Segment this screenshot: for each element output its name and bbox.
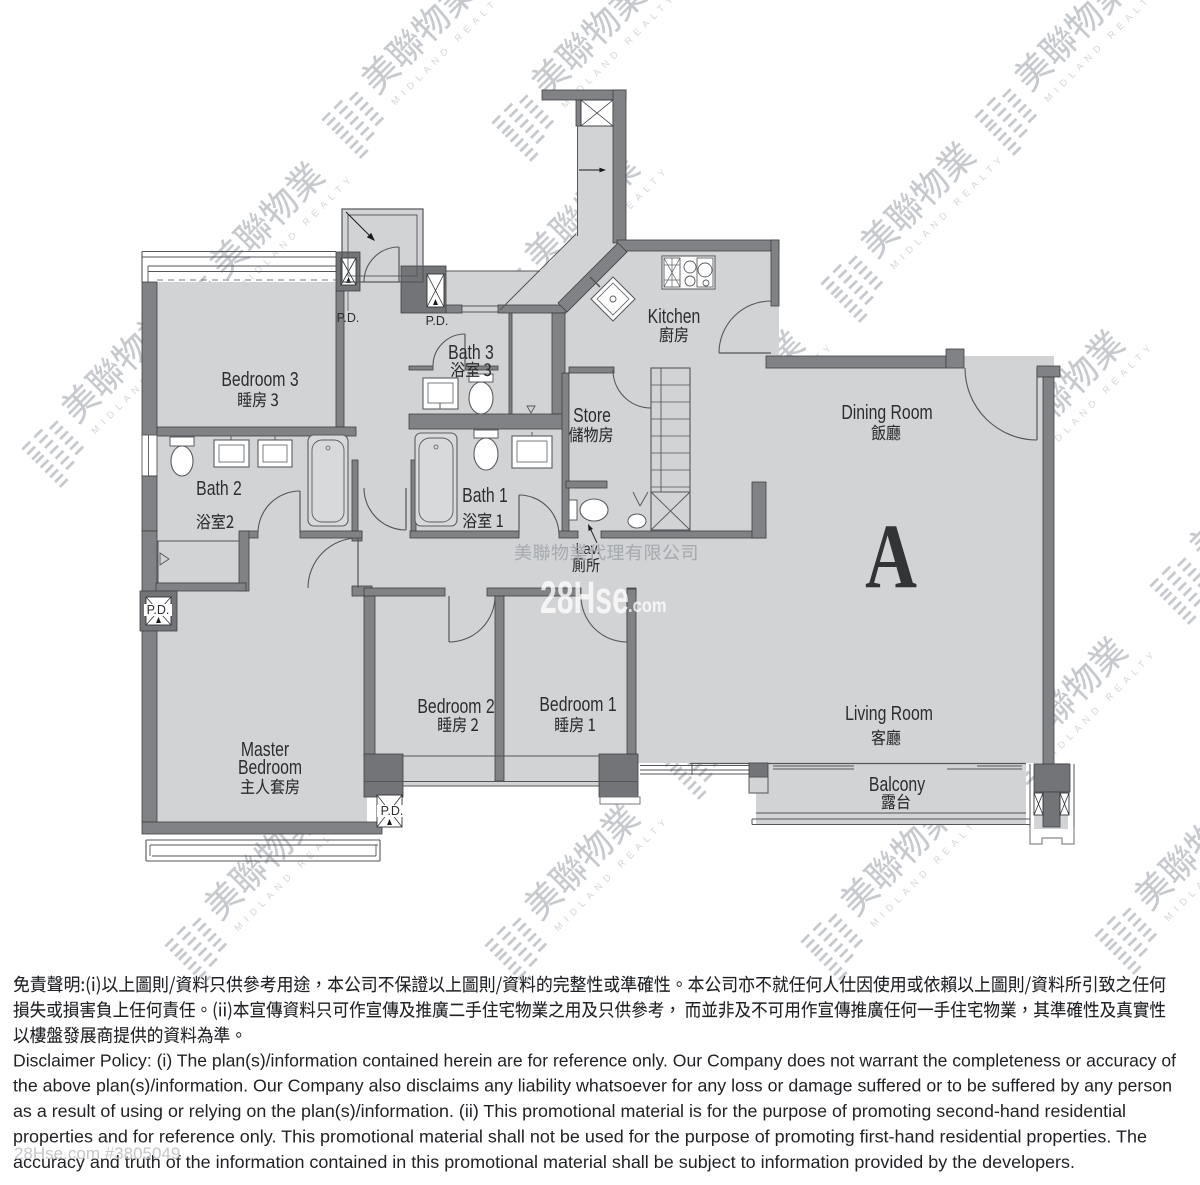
svg-text:Bedroom: Bedroom: [238, 756, 302, 778]
svg-text:Bath 2: Bath 2: [196, 477, 242, 499]
svg-text:Disclaimer Policy: (i) The pla: Disclaimer Policy: (i) The plan(s)/infor…: [13, 1050, 1176, 1070]
svg-text:Store: Store: [573, 404, 611, 426]
svg-text:P.D.: P.D.: [337, 311, 360, 325]
svg-text:Bath 1: Bath 1: [462, 484, 508, 506]
svg-text:Bedroom 1: Bedroom 1: [539, 693, 616, 715]
svg-text:the above plan(s)/information.: the above plan(s)/information. Our Compa…: [13, 1076, 1172, 1096]
svg-text:Living Room: Living Room: [845, 702, 933, 724]
svg-text:Bedroom 2: Bedroom 2: [417, 695, 494, 717]
svg-text:A: A: [865, 504, 917, 607]
svg-text:Dining Room: Dining Room: [841, 401, 932, 423]
svg-text:P.D.: P.D.: [147, 603, 170, 617]
svg-text:28Hse: 28Hse: [540, 573, 629, 624]
svg-text:as a result of using or relyin: as a result of using or relying on the p…: [13, 1101, 1126, 1121]
svg-text:properties and for reference o: properties and for reference only. This …: [13, 1127, 1147, 1147]
svg-text:Bedroom 3: Bedroom 3: [221, 368, 298, 390]
svg-text:Bath 3: Bath 3: [448, 341, 494, 363]
svg-text:P.D.: P.D.: [426, 314, 449, 328]
svg-text:.com: .com: [628, 595, 667, 616]
svg-text:28Hse.com #3805049: 28Hse.com #3805049: [14, 1144, 180, 1163]
svg-text:Kitchen: Kitchen: [648, 305, 701, 327]
svg-text:Balcony: Balcony: [869, 773, 925, 795]
svg-text:P.D.: P.D.: [381, 804, 404, 818]
